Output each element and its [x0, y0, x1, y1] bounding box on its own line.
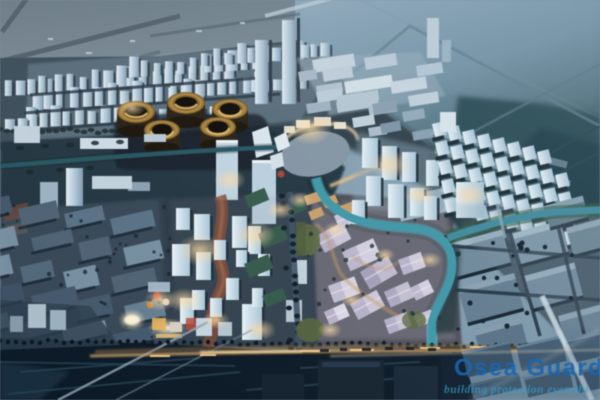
svg-text:building protection everythi: building protection everythi: [444, 384, 589, 396]
svg-text:Osea Guard: Osea Guard: [454, 355, 600, 382]
